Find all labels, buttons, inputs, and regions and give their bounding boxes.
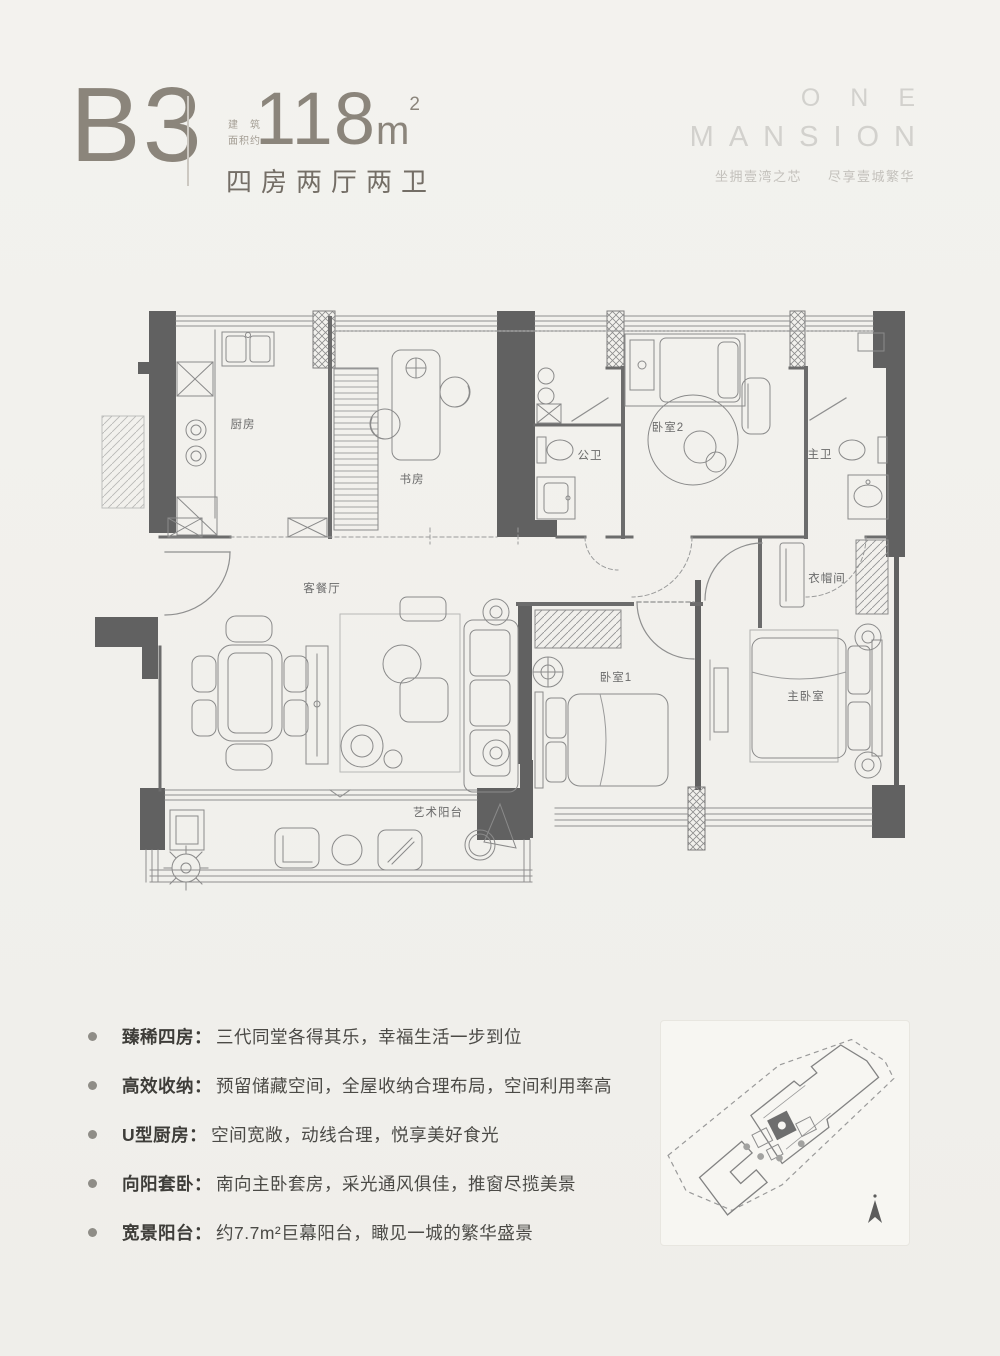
bullet-dot-icon xyxy=(88,1228,97,1237)
balcony-furniture xyxy=(164,804,516,890)
bedroom1-furniture xyxy=(533,610,668,788)
guest-bath-fixtures xyxy=(537,368,575,519)
building-west xyxy=(694,1140,772,1219)
feature-label: 宽景阳台： xyxy=(122,1220,212,1245)
feature-text: 空间宽敞，动线合理，悦享美好食光 xyxy=(211,1122,499,1147)
feature-item: U型厨房： 空间宽敞，动线合理，悦享美好食光 xyxy=(88,1123,612,1145)
bullet-dot-icon xyxy=(88,1130,97,1139)
feature-text: 三代同堂各得其乐，幸福生活一步到位 xyxy=(216,1024,522,1049)
flyer-page: B3 建筑 面积约 118m2 四房两厅两卫 ONE MANSION 坐拥壹湾之… xyxy=(0,0,1000,1356)
walls xyxy=(95,311,905,850)
room-label-master-bath: 主卫 xyxy=(808,446,833,462)
ac-ledge xyxy=(102,416,144,508)
feature-list: 臻稀四房： 三代同堂各得其乐，幸福生活一步到位 高效收纳： 预留储藏空间，全屋收… xyxy=(88,1025,612,1243)
bullet-dot-icon xyxy=(88,1032,97,1041)
feature-label: U型厨房： xyxy=(122,1122,207,1147)
feature-text: 约7.7m²巨幕阳台，瞰见一城的繁华盛景 xyxy=(216,1220,533,1245)
feature-item: 臻稀四房： 三代同堂各得其乐，幸福生活一步到位 xyxy=(88,1025,612,1047)
room-label-balcony: 艺术阳台 xyxy=(413,804,463,820)
feature-label: 臻稀四房： xyxy=(122,1024,212,1049)
feature-text: 南向主卧套房，采光通风俱佳，推窗尽揽美景 xyxy=(216,1171,576,1196)
feature-label: 高效收纳： xyxy=(122,1073,212,1098)
room-label-cloakroom: 衣帽间 xyxy=(808,570,846,586)
feature-item: 高效收纳： 预留储藏空间，全屋收纳合理布局，空间利用率高 xyxy=(88,1074,612,1096)
hatched-columns xyxy=(313,311,805,850)
room-label-living: 客餐厅 xyxy=(303,580,341,596)
bullet-dot-icon xyxy=(88,1081,97,1090)
site-plan-svg xyxy=(661,1021,909,1245)
room-label-kitchen: 厨房 xyxy=(231,416,256,432)
bedroom2-furniture xyxy=(625,334,770,485)
room-label-master-bed: 主卧室 xyxy=(787,688,825,704)
feature-item: 宽景阳台： 约7.7m²巨幕阳台，瞰见一城的繁华盛景 xyxy=(88,1221,612,1243)
feature-item: 向阳套卧： 南向主卧套房，采光通风俱佳，推窗尽揽美景 xyxy=(88,1172,612,1194)
building-east xyxy=(741,1036,894,1166)
room-label-study: 书房 xyxy=(400,471,425,487)
kitchen-fixtures xyxy=(168,330,378,537)
north-arrow-icon xyxy=(868,1194,882,1223)
study-furniture xyxy=(370,350,470,460)
feature-text: 预留储藏空间，全屋收纳合理布局，空间利用率高 xyxy=(216,1073,612,1098)
living-dining-furniture xyxy=(192,597,518,792)
room-label-bedroom2: 卧室2 xyxy=(652,419,684,435)
feature-label: 向阳套卧： xyxy=(122,1171,212,1196)
room-label-bedroom1: 卧室1 xyxy=(600,669,632,685)
site-plan-card xyxy=(660,1020,910,1246)
bullet-dot-icon xyxy=(88,1179,97,1188)
room-label-guest-bath: 公卫 xyxy=(578,447,603,463)
